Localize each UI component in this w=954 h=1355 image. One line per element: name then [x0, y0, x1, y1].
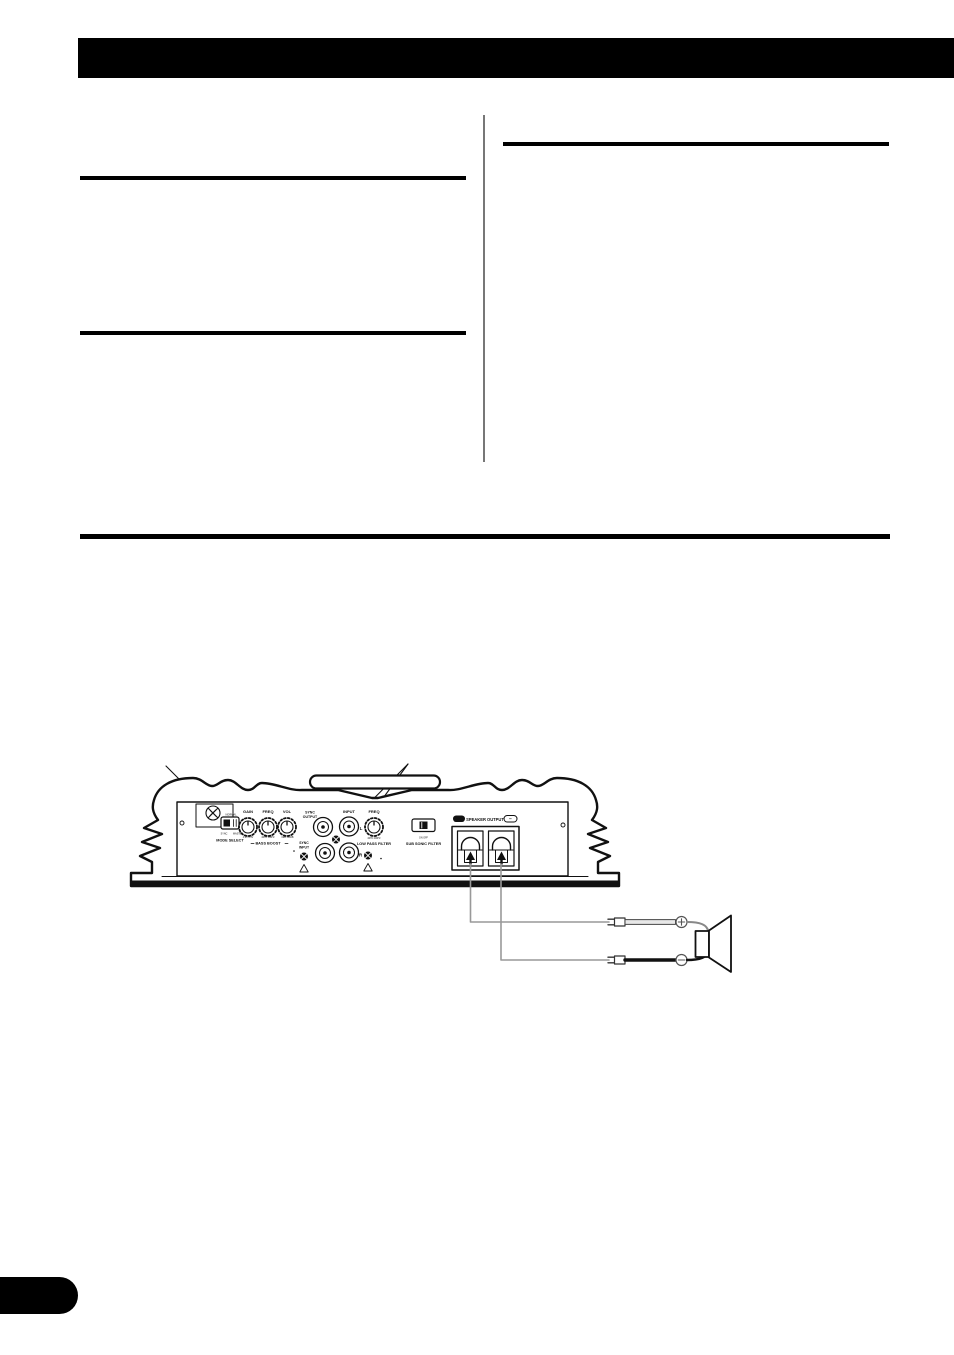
input-label: INPUT: [343, 809, 356, 814]
svg-text:+: +: [458, 817, 461, 823]
freq-label: FREQ: [262, 809, 273, 814]
positive-lead: [625, 920, 676, 925]
left-column-rule-2: [80, 331, 466, 335]
subsonic-filter-switch: [412, 819, 435, 832]
subsonic-marks: ON OFF: [419, 837, 429, 840]
left-column-rule-1: [80, 176, 466, 180]
speaker-terminal-block-positive: [458, 831, 484, 866]
column-divider: [483, 115, 485, 462]
svg-text:−: −: [509, 817, 512, 823]
amplifier-handle: [310, 776, 440, 789]
right-column-rule: [503, 142, 889, 146]
amplifier-rear-panel-diagram: NORMAL SYNC MASTER MODE SELECT GAIN FREQ…: [90, 745, 760, 1005]
positive-lead-plus-icon: [676, 917, 687, 928]
mode-select-top-mark: NORMAL: [225, 813, 237, 817]
speaker-output-label: SPEAKER OUTPUT: [466, 817, 504, 822]
low-pass-filter-label: LOW PASS FILTER: [357, 842, 391, 846]
sync-input-label-2: INPUT: [299, 845, 310, 849]
crimp-connector-positive: [608, 918, 625, 926]
page-number-tab: [0, 1277, 78, 1314]
speaker-terminal-block-negative: [489, 831, 515, 866]
low-pass-freq-label: FREQ: [368, 809, 379, 814]
bass-boost-vol-marks: 0dB +12dB: [282, 836, 294, 839]
low-pass-scale-marks: 40Hz 200Hz: [367, 837, 381, 840]
amplifier-bottom-edge: [131, 881, 619, 887]
gain-label: GAIN: [243, 809, 253, 814]
panel-phillips-screw-icon: [332, 836, 340, 844]
crimp-connector-negative: [608, 956, 625, 964]
sync-output-label-2: OUTPUT: [303, 815, 318, 819]
bass-boost-label: BASS BOOST: [255, 842, 281, 846]
header-title-bar: [78, 38, 954, 78]
mode-select-label: MODE SELECT: [216, 839, 244, 843]
subsonic-filter-label: SUB SONIC FILTER: [406, 842, 441, 846]
mode-select-switch: [221, 817, 239, 829]
input-l-mark: L: [360, 826, 363, 831]
manual-page: NORMAL SYNC MASTER MODE SELECT GAIN FREQ…: [0, 0, 954, 1355]
bass-boost-freq-marks: 40Hz 100Hz: [261, 836, 275, 839]
mode-select-mark-left: SYNC: [221, 833, 228, 836]
full-width-rule: [80, 534, 890, 539]
vol-label: VOL: [283, 809, 292, 814]
speaker-output-minus-badge: −: [504, 816, 517, 823]
negative-lead-minus-icon: [676, 955, 687, 966]
gain-scale-marks: 4.2V 0.3V: [243, 836, 254, 839]
